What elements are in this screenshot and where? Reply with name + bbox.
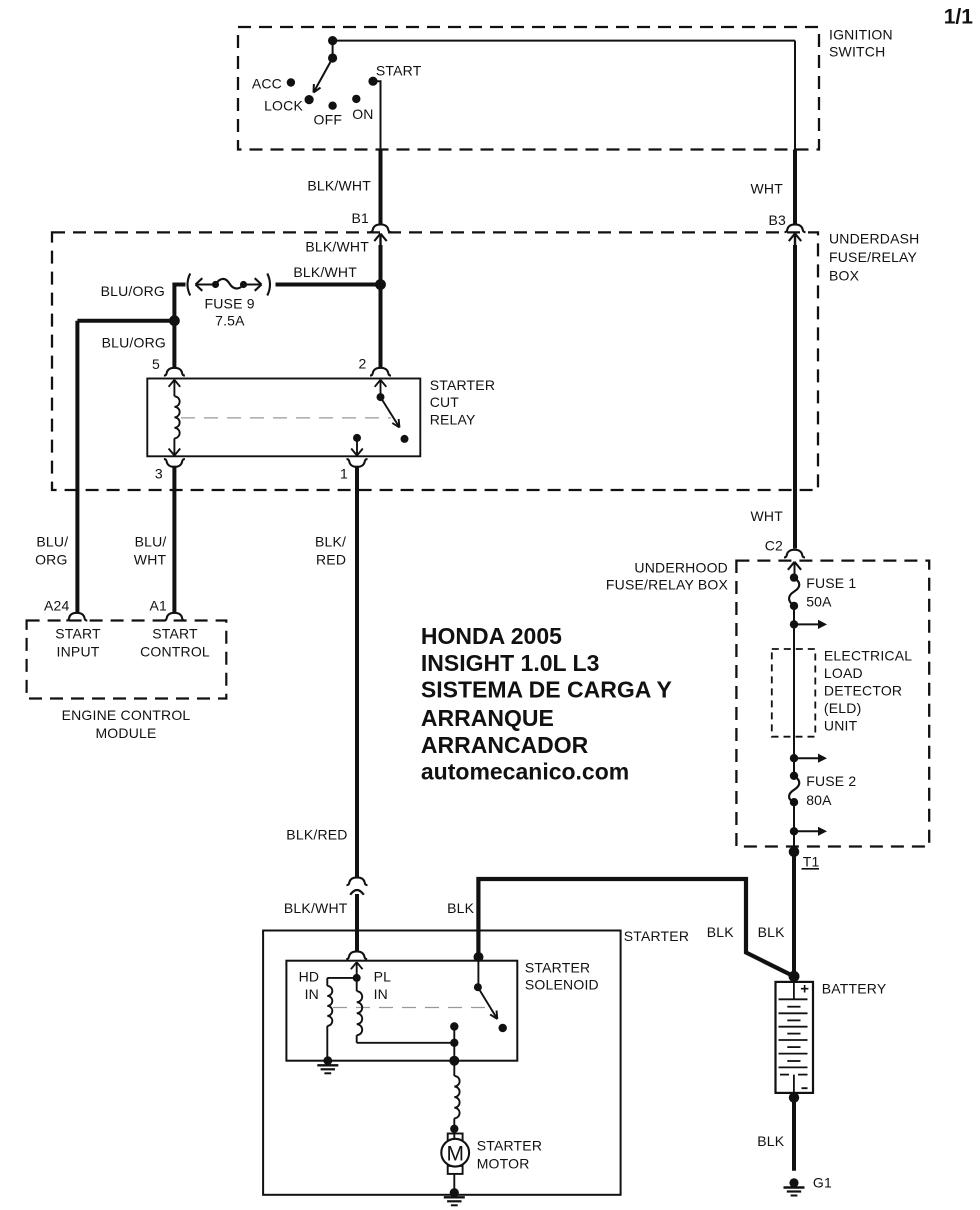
svg-text:START: START	[376, 62, 422, 78]
svg-text:CONTROL: CONTROL	[140, 644, 210, 660]
svg-text:2: 2	[359, 356, 367, 372]
svg-text:M: M	[446, 1142, 464, 1165]
svg-text:ARRANQUE: ARRANQUE	[421, 705, 554, 731]
svg-text:FUSE/RELAY BOX: FUSE/RELAY BOX	[606, 576, 729, 592]
svg-text:IN: IN	[374, 986, 388, 1002]
svg-text:B1: B1	[351, 210, 369, 226]
svg-text:STARTER: STARTER	[477, 1137, 542, 1153]
svg-text:1/1: 1/1	[944, 6, 974, 29]
svg-text:MODULE: MODULE	[95, 725, 156, 741]
svg-text:MOTOR: MOTOR	[477, 1155, 530, 1171]
svg-text:+: +	[800, 981, 809, 998]
svg-text:INSIGHT 1.0L L3: INSIGHT 1.0L L3	[421, 650, 600, 676]
svg-text:UNIT: UNIT	[824, 718, 858, 734]
svg-text:BATTERY: BATTERY	[822, 980, 887, 996]
svg-text:ENGINE CONTROL: ENGINE CONTROL	[62, 707, 191, 723]
svg-text:WHT: WHT	[751, 508, 784, 524]
svg-text:BOX: BOX	[829, 268, 860, 284]
svg-text:A24: A24	[44, 597, 70, 613]
svg-text:BLK/WHT: BLK/WHT	[284, 900, 348, 916]
svg-text:T1: T1	[803, 854, 820, 870]
svg-text:G1: G1	[813, 1175, 832, 1191]
svg-text:BLK/: BLK/	[315, 533, 346, 549]
svg-text:BLK/WHT: BLK/WHT	[307, 177, 371, 193]
svg-text:BLU/: BLU/	[36, 533, 68, 549]
svg-text:SISTEMA DE CARGA Y: SISTEMA DE CARGA Y	[421, 677, 672, 703]
svg-text:UNDERHOOD: UNDERHOOD	[634, 560, 728, 576]
svg-text:IN: IN	[305, 986, 319, 1002]
svg-text:ARRANCADOR: ARRANCADOR	[421, 732, 589, 758]
svg-text:A1: A1	[149, 597, 167, 613]
svg-text:ACC: ACC	[252, 75, 282, 91]
svg-text:STARTER: STARTER	[624, 928, 689, 944]
svg-text:RED: RED	[316, 551, 346, 567]
svg-text:BLK: BLK	[707, 924, 735, 940]
svg-text:C2: C2	[765, 538, 783, 554]
svg-text:LOAD: LOAD	[824, 665, 863, 681]
svg-text:UNDERDASH: UNDERDASH	[829, 231, 919, 247]
svg-text:BLU/ORG: BLU/ORG	[101, 283, 165, 299]
svg-text:3: 3	[155, 465, 163, 481]
svg-text:STARTER: STARTER	[525, 960, 590, 976]
svg-text:FUSE 2: FUSE 2	[806, 773, 856, 789]
svg-text:HD: HD	[299, 968, 320, 984]
svg-text:SWITCH: SWITCH	[829, 44, 885, 60]
svg-text:BLU/: BLU/	[135, 533, 167, 549]
svg-text:PL: PL	[374, 968, 392, 984]
svg-text:(ELD): (ELD)	[824, 700, 862, 716]
svg-text:BLK/RED: BLK/RED	[286, 827, 347, 843]
svg-text:80A: 80A	[806, 792, 832, 808]
svg-text:BLU/ORG: BLU/ORG	[102, 334, 166, 350]
svg-text:CUT: CUT	[430, 394, 460, 410]
svg-text:5: 5	[152, 356, 160, 372]
svg-text:FUSE 9: FUSE 9	[205, 296, 255, 312]
svg-text:BLK: BLK	[757, 1133, 785, 1149]
svg-text:ELECTRICAL: ELECTRICAL	[824, 647, 912, 663]
svg-text:50A: 50A	[806, 593, 832, 609]
svg-text:B3: B3	[768, 212, 786, 228]
svg-text:7.5A: 7.5A	[215, 313, 245, 329]
svg-text:HONDA 2005: HONDA 2005	[421, 623, 562, 649]
svg-text:RELAY: RELAY	[430, 411, 476, 427]
svg-text:1: 1	[340, 465, 348, 481]
svg-text:DETECTOR: DETECTOR	[824, 683, 902, 699]
svg-text:ON: ON	[352, 106, 373, 122]
svg-text:WHT: WHT	[751, 181, 784, 197]
svg-text:BLK/WHT: BLK/WHT	[293, 264, 357, 280]
svg-text:STARTER: STARTER	[430, 377, 495, 393]
svg-text:BLK: BLK	[758, 924, 786, 940]
svg-text:BLK/WHT: BLK/WHT	[305, 239, 369, 255]
svg-text:ORG: ORG	[35, 551, 68, 567]
svg-text:INPUT: INPUT	[57, 644, 100, 660]
svg-text:OFF: OFF	[314, 112, 343, 128]
svg-text:SOLENOID: SOLENOID	[525, 977, 599, 993]
svg-text:FUSE 1: FUSE 1	[806, 575, 856, 591]
svg-text:START: START	[55, 626, 101, 642]
svg-text:IGNITION: IGNITION	[829, 27, 893, 43]
svg-text:WHT: WHT	[134, 551, 167, 567]
svg-text:FUSE/RELAY: FUSE/RELAY	[829, 249, 918, 265]
svg-text:START: START	[152, 626, 198, 642]
svg-text:automecanico.com: automecanico.com	[421, 758, 629, 784]
svg-text:BLK: BLK	[447, 900, 475, 916]
svg-text:LOCK: LOCK	[264, 97, 303, 113]
